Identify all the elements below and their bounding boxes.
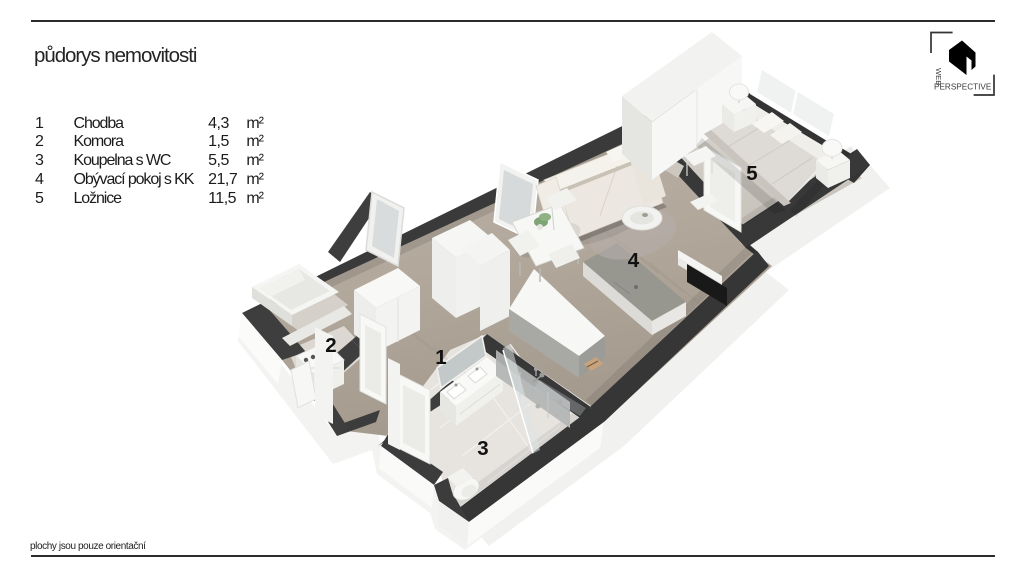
svg-text:3: 3 [477,437,488,460]
svg-text:5: 5 [746,162,757,185]
svg-text:4: 4 [628,249,640,272]
svg-text:2: 2 [325,334,336,357]
svg-text:PERSPECTIVE: PERSPECTIVE [934,83,992,92]
svg-text:1: 1 [435,346,446,369]
